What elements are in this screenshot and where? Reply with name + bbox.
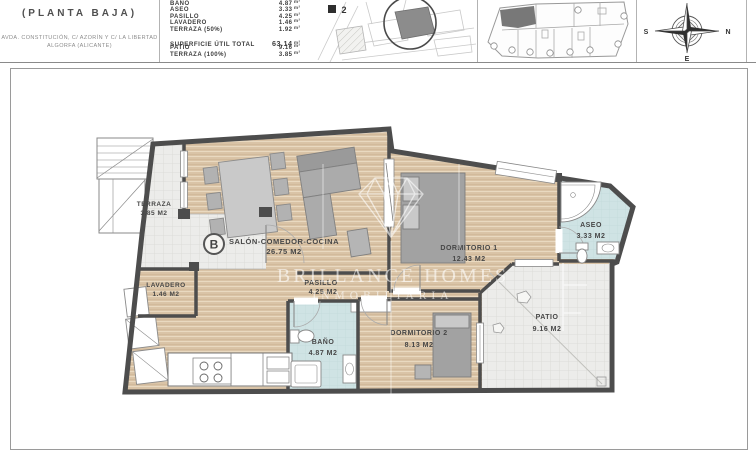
block-legend-square xyxy=(328,5,336,13)
room-label-lavadero-name: LAVADERO xyxy=(146,282,186,289)
area-unit: m² xyxy=(294,50,302,55)
location-map-figure: 2 xyxy=(310,0,478,62)
area-label: TERRAZA (100%) xyxy=(170,52,267,58)
kitchen-counter xyxy=(168,353,292,386)
area-unit: m² xyxy=(294,18,302,23)
compass-east: E xyxy=(685,56,690,62)
plan-area: TERRAZA 3.85 M2 SALÓN-COMEDOR-COCINA 26.… xyxy=(10,68,748,450)
area-value: 1.46 xyxy=(267,20,293,26)
room-label-salon-area: 26.75 M2 xyxy=(266,247,301,256)
area-label: TERRAZA (50%) xyxy=(170,27,267,33)
floorplan-sheet: (PLANTA BAJA) AVDA. CONSTITUCIÓN, C/ AZO… xyxy=(0,0,756,456)
room-label-bano-name: BAÑO xyxy=(312,337,335,346)
area-value: 3.33 xyxy=(267,7,293,13)
sliding-door-dormitorio1 xyxy=(384,159,394,227)
room-label-dormitorio1-area: 12.43 M2 xyxy=(452,256,485,263)
area-unit: m² xyxy=(294,5,302,10)
room-label-patio-name: PATIO xyxy=(536,314,559,321)
unit-badge-letter: B xyxy=(210,238,219,252)
area-value: 9.16 xyxy=(267,45,293,51)
room-label-aseo-name: ASEO xyxy=(580,222,602,229)
unit-badge: B xyxy=(204,234,224,254)
area-row: TERRAZA (100%) 3.85 m² xyxy=(170,52,302,58)
watermark-line1: BRILLANCE HOMES xyxy=(277,265,509,287)
area-value: 4.87 xyxy=(267,1,293,7)
room-label-terraza-area: 3.85 M2 xyxy=(141,210,168,217)
compass-points xyxy=(655,3,719,53)
highlighted-plot xyxy=(395,7,435,39)
room-label-lavadero-area: 1.46 M2 xyxy=(153,291,180,298)
area-value: 1.92 xyxy=(267,27,293,33)
area-unit: m² xyxy=(294,0,302,4)
area-unit: m² xyxy=(294,25,302,30)
room-label-dormitorio1-name: DORMITORIO 1 xyxy=(440,245,497,252)
area-label: LAVADERO xyxy=(170,20,267,26)
window-patio-door xyxy=(515,260,553,267)
area-unit: m² xyxy=(294,12,302,17)
areas-rows: BAÑO 4.87 m² ASEO 3.33 m² PASILLO 4.25 m… xyxy=(160,0,310,58)
area-label: BAÑO xyxy=(170,1,267,7)
area-value: 4.25 xyxy=(267,14,293,20)
areas-table: BAÑO 4.87 m² ASEO 3.33 m² PASILLO 4.25 m… xyxy=(160,0,310,62)
area-unit: m² xyxy=(294,43,302,48)
compass-south: S xyxy=(644,29,649,36)
watermark-line2: INMOBILIARIA xyxy=(312,290,453,302)
address-line2: ALGORFA (ALICANTE) xyxy=(0,42,159,50)
area-row: TERRAZA (50%) 1.92 m² xyxy=(170,27,302,33)
plan-title: (PLANTA BAJA) xyxy=(0,8,159,19)
block-number: 2 xyxy=(341,5,346,15)
compass-north: N xyxy=(725,29,730,36)
room-label-aseo-area: 3.33 M2 xyxy=(577,233,606,240)
title-cell: (PLANTA BAJA) AVDA. CONSTITUCIÓN, C/ AZO… xyxy=(0,0,160,62)
hatched-parcel xyxy=(336,26,366,54)
area-label: ASEO xyxy=(170,7,267,13)
room-label-terraza-name: TERRAZA xyxy=(137,201,172,208)
area-label: PASILLO xyxy=(170,14,267,20)
room-label-dormitorio2-area: 8.13 M2 xyxy=(405,342,434,349)
room-label-patio-area: 9.16 M2 xyxy=(533,326,562,333)
room-label-bano-area: 4.87 M2 xyxy=(309,350,338,357)
key-plan xyxy=(478,0,637,62)
floor-plan-figure: TERRAZA 3.85 M2 SALÓN-COMEDOR-COCINA 26.… xyxy=(11,69,747,449)
compass-figure: S N E xyxy=(637,0,747,62)
address: AVDA. CONSTITUCIÓN, C/ AZORÍN Y C/ LA LI… xyxy=(0,34,159,50)
compass-rose: S N E xyxy=(637,0,747,62)
area-label: PATIO xyxy=(170,45,267,51)
title-block: (PLANTA BAJA) AVDA. CONSTITUCIÓN, C/ AZO… xyxy=(0,0,756,63)
address-line1: AVDA. CONSTITUCIÓN, C/ AZORÍN Y C/ LA LI… xyxy=(0,34,159,42)
room-label-dormitorio2-name: DORMITORIO 2 xyxy=(390,330,447,337)
key-plan-figure xyxy=(478,0,637,62)
location-map: 2 xyxy=(310,0,478,62)
area-value: 3.85 xyxy=(267,52,293,58)
